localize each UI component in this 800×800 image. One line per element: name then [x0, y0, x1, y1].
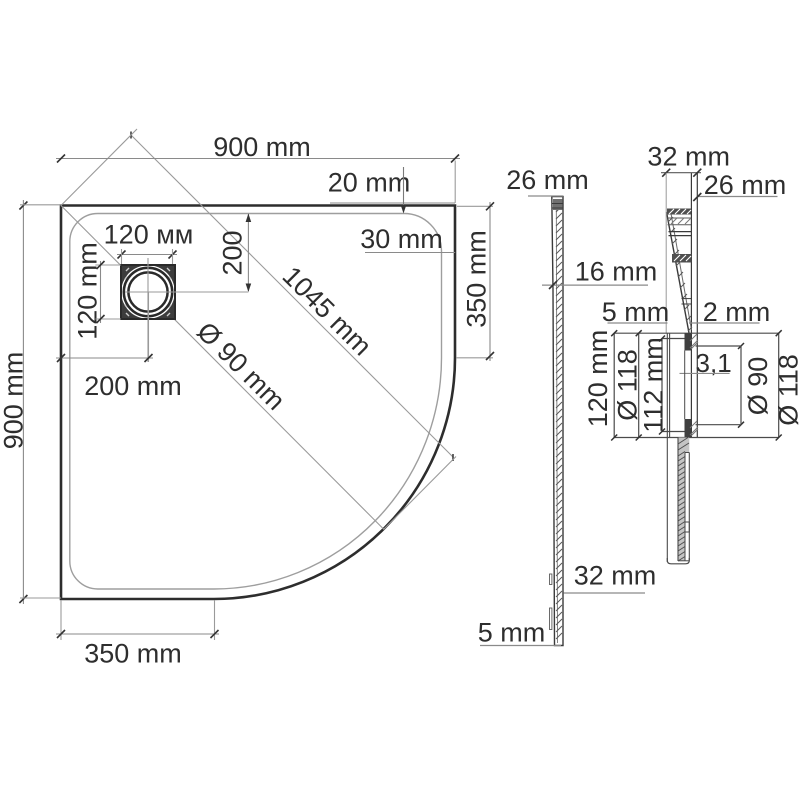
svg-text:20 mm: 20 mm	[328, 168, 411, 198]
svg-text:26 mm: 26 mm	[704, 170, 787, 200]
svg-text:Ø 118: Ø 118	[774, 354, 800, 426]
svg-text:200: 200	[218, 230, 248, 275]
svg-text:120 mm: 120 mm	[583, 330, 613, 428]
svg-text:120 mm: 120 mm	[73, 242, 103, 340]
svg-text:32 mm: 32 mm	[647, 142, 730, 172]
svg-text:200 mm: 200 mm	[84, 371, 182, 401]
svg-text:Ø 90: Ø 90	[743, 357, 773, 416]
svg-text:30 mm: 30 mm	[360, 224, 443, 254]
svg-text:120 мм: 120 мм	[104, 220, 194, 250]
svg-text:900 mm: 900 mm	[213, 132, 311, 162]
svg-text:350 mm: 350 mm	[462, 230, 492, 328]
svg-text:5 mm: 5 mm	[478, 618, 546, 648]
svg-text:350 mm: 350 mm	[84, 639, 182, 669]
svg-text:32 mm: 32 mm	[574, 561, 657, 591]
svg-text:16 mm: 16 mm	[575, 257, 658, 287]
svg-text:900 mm: 900 mm	[0, 352, 29, 450]
svg-text:26 mm: 26 mm	[506, 165, 589, 195]
svg-text:112 mm: 112 mm	[639, 337, 669, 433]
